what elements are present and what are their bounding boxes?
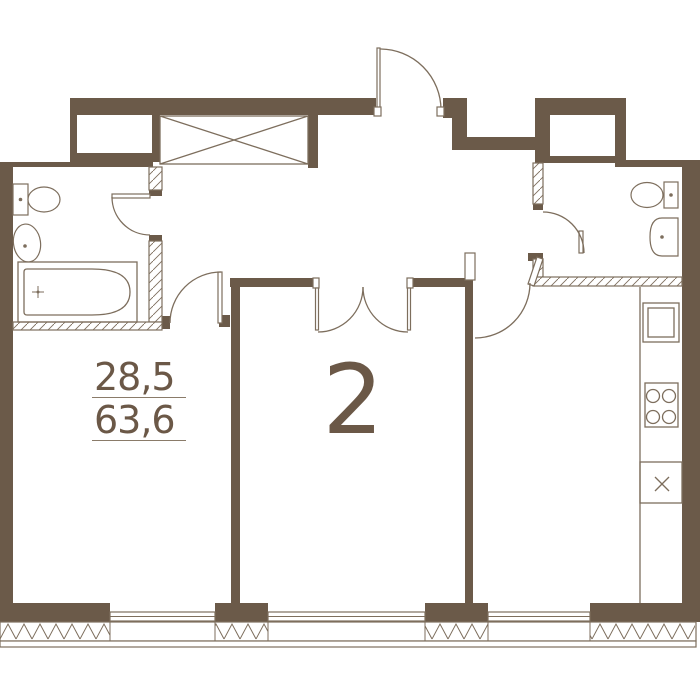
rooms-count-label: 2 <box>293 352 413 448</box>
appliance-place-icon <box>640 462 682 503</box>
bathtub-icon <box>18 262 137 322</box>
toilet-icon <box>631 182 678 208</box>
floorplan-page: 28,5 63,6 2 <box>0 0 700 700</box>
kitchen-sink-icon <box>643 303 679 342</box>
toilet-icon <box>13 184 60 215</box>
sink-icon <box>650 218 678 256</box>
double-door <box>313 278 413 332</box>
bathroom-right <box>543 182 678 256</box>
living-area-label: 28,5 <box>92 357 186 398</box>
kitchen <box>640 287 682 603</box>
window <box>268 612 425 621</box>
bathroom-right-door <box>543 212 584 253</box>
window <box>488 612 590 621</box>
sink-icon <box>11 222 43 263</box>
bathroom-left <box>11 184 150 322</box>
stove-icon <box>645 383 678 427</box>
left-room-door <box>170 272 222 323</box>
kitchen-door <box>465 253 543 338</box>
window <box>110 612 215 621</box>
total-area-label: 63,6 <box>92 400 186 441</box>
balcony-slab <box>0 641 696 647</box>
wardrobe-icon <box>160 116 308 164</box>
entrance-door <box>374 48 444 116</box>
bathroom-left-door <box>112 194 150 235</box>
